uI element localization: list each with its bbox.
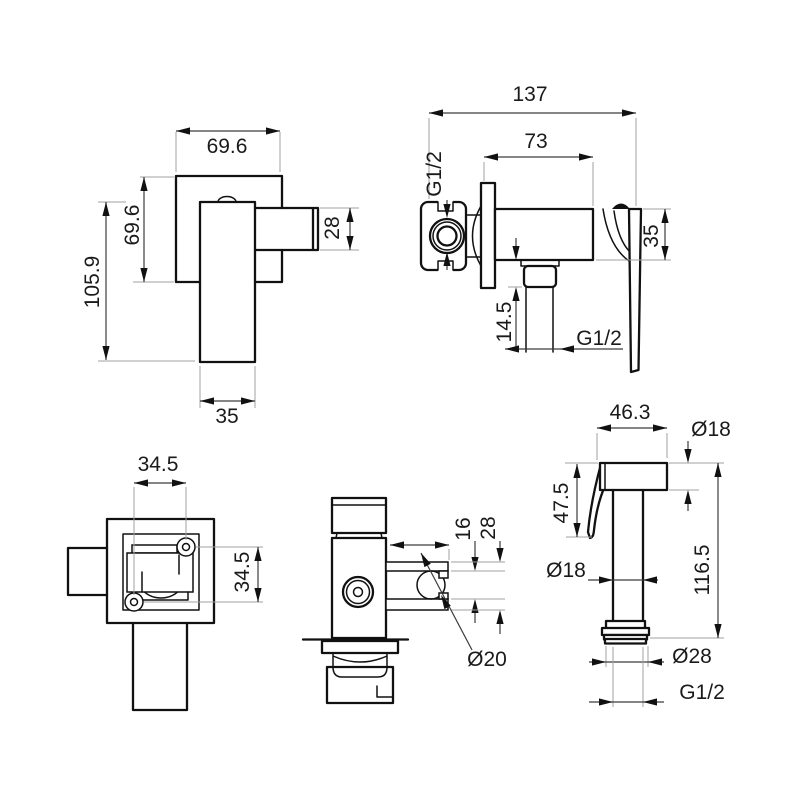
- lever-dome: [612, 204, 630, 210]
- holder-top-jaw: [386, 562, 448, 571]
- screw-bottom-left: [125, 593, 143, 611]
- dim-top-spacing-v: 34.5: [231, 552, 254, 593]
- holder-top-lip: [439, 571, 448, 578]
- front-view: 69.6 69.6 105.9 28 35: [81, 127, 359, 428]
- holder-view-geometry: [303, 498, 448, 703]
- dim-shower-nut-dia: Ø28: [672, 645, 712, 668]
- lever-band: [132, 545, 177, 553]
- dim-shower-head-width: 46.3: [610, 401, 651, 424]
- front-view-dimensions: 69.6 69.6 105.9 28 35: [81, 127, 359, 428]
- mixer-body: [495, 209, 593, 260]
- dim-front-width: 69.6: [207, 135, 248, 158]
- top-view: 34.5 34.5: [68, 453, 263, 710]
- dim-holder-height: 28: [477, 516, 500, 539]
- dim-front-total-height: 105.9: [81, 256, 104, 309]
- dim-shower-length: 116.5: [691, 545, 714, 596]
- wall-union: [421, 202, 466, 270]
- shower-head: [600, 463, 667, 490]
- dim-front-height: 69.6: [121, 205, 144, 246]
- outlet-pipe: [526, 287, 553, 352]
- shower-view-geometry: [588, 463, 667, 644]
- dim-shower-head-height: 47.5: [550, 483, 573, 524]
- side-view: 137 73 G1/2 35 14.5 G1/2: [421, 83, 671, 372]
- dim-front-spout-height: 28: [321, 216, 344, 239]
- dim-side-outlet-offset: 14.5: [493, 302, 516, 343]
- dim-holder-hole: Ø20: [467, 648, 507, 671]
- top-view-geometry: [68, 519, 214, 710]
- dim-side-depth: 137: [512, 83, 547, 106]
- dim-side-inlet-thread: G1/2: [423, 151, 446, 197]
- dim-holder-slot: 16: [452, 517, 475, 540]
- lever-top: [127, 553, 193, 592]
- valve-knob: [332, 498, 386, 533]
- front-view-geometry: [176, 176, 318, 362]
- shower-view: 46.3 Ø18 47.5 Ø18 116.5 Ø28: [546, 401, 731, 707]
- holder-view: 16 28 Ø20: [303, 498, 507, 703]
- dim-side-outlet-thread: G1/2: [576, 327, 622, 350]
- dim-side-body-depth: 73: [524, 130, 547, 153]
- screw-top-right: [177, 538, 195, 556]
- drawing-page: 69.6 69.6 105.9 28 35: [0, 0, 800, 800]
- dim-shower-thread: G1/2: [679, 681, 725, 704]
- holder-bottom-jaw: [386, 599, 448, 610]
- dim-shower-head-dia: Ø18: [691, 418, 731, 441]
- wall-flange: [481, 183, 495, 288]
- spout-top-view: [68, 548, 107, 595]
- dim-side-handle-drop: 35: [640, 224, 663, 247]
- body-top-view: [133, 623, 187, 710]
- outlet-nut: [524, 266, 556, 287]
- dim-shower-tube-dia: Ø18: [546, 559, 586, 582]
- shower-view-dimensions: 46.3 Ø18 47.5 Ø18 116.5 Ø28: [546, 401, 731, 707]
- dim-top-spacing-h: 34.5: [138, 453, 179, 476]
- shower-handle-tube: [613, 490, 643, 621]
- technical-drawing-canvas: 69.6 69.6 105.9 28 35: [0, 0, 800, 800]
- dim-front-base-width: 35: [215, 405, 238, 428]
